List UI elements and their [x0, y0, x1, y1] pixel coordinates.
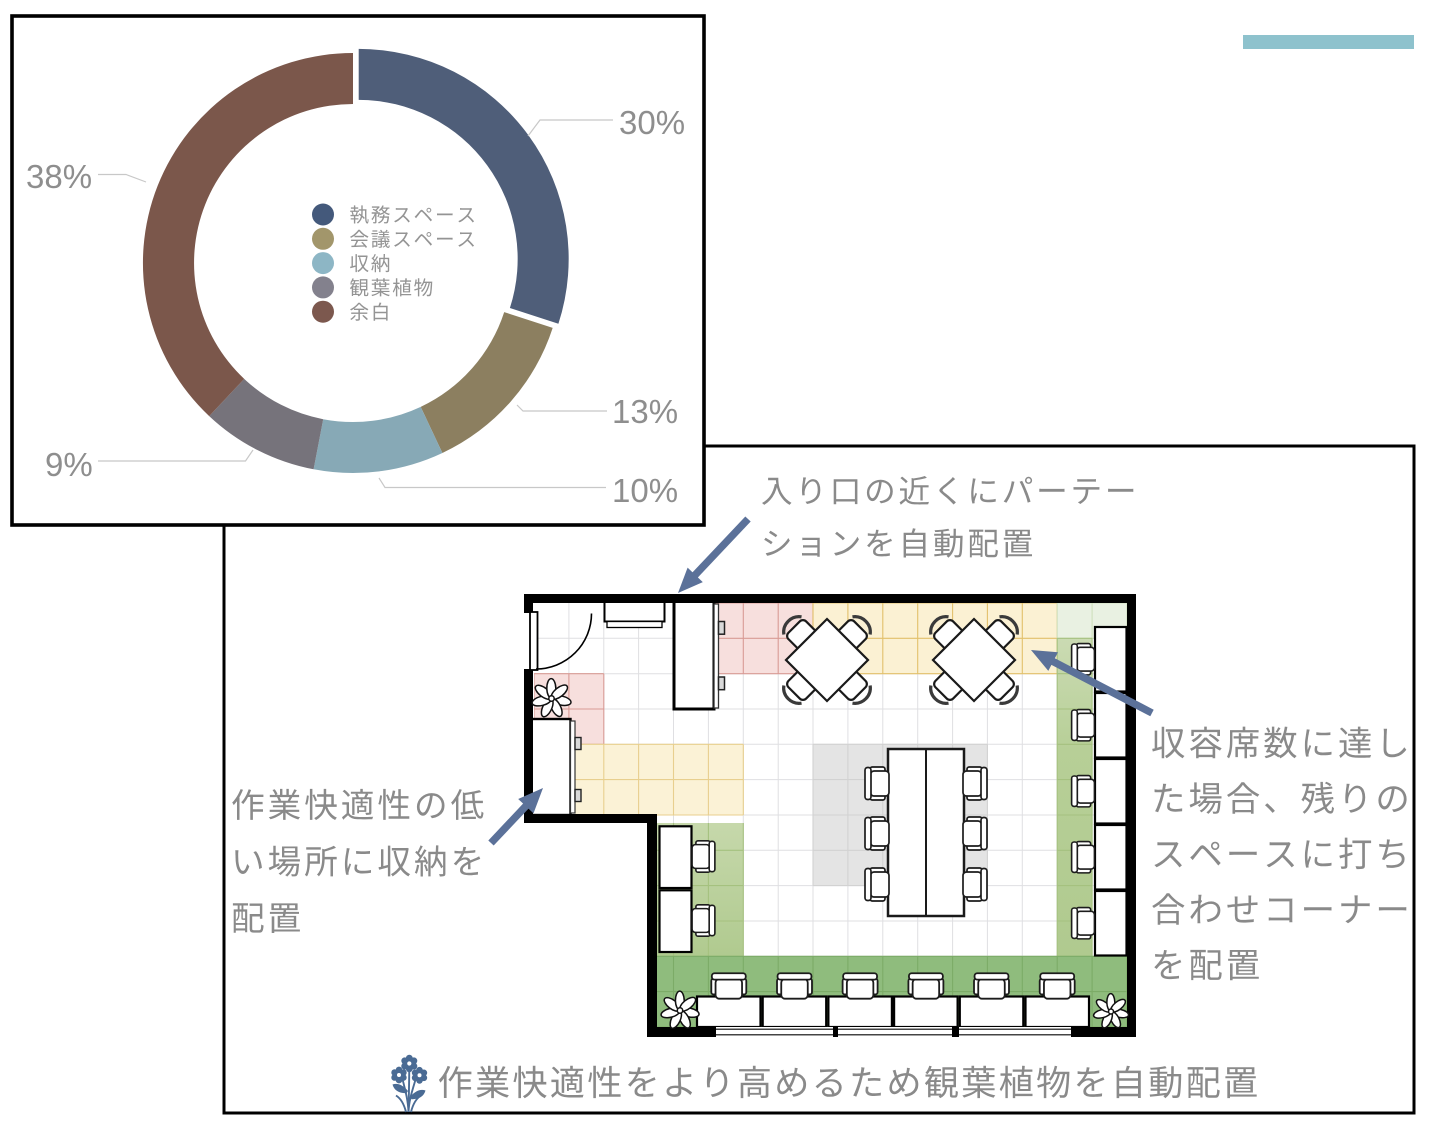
svg-text:38%: 38% — [26, 158, 92, 195]
svg-text:9%: 9% — [45, 446, 93, 483]
svg-text:13%: 13% — [612, 393, 678, 430]
svg-text:30%: 30% — [619, 104, 685, 141]
svg-text:10%: 10% — [612, 472, 678, 509]
